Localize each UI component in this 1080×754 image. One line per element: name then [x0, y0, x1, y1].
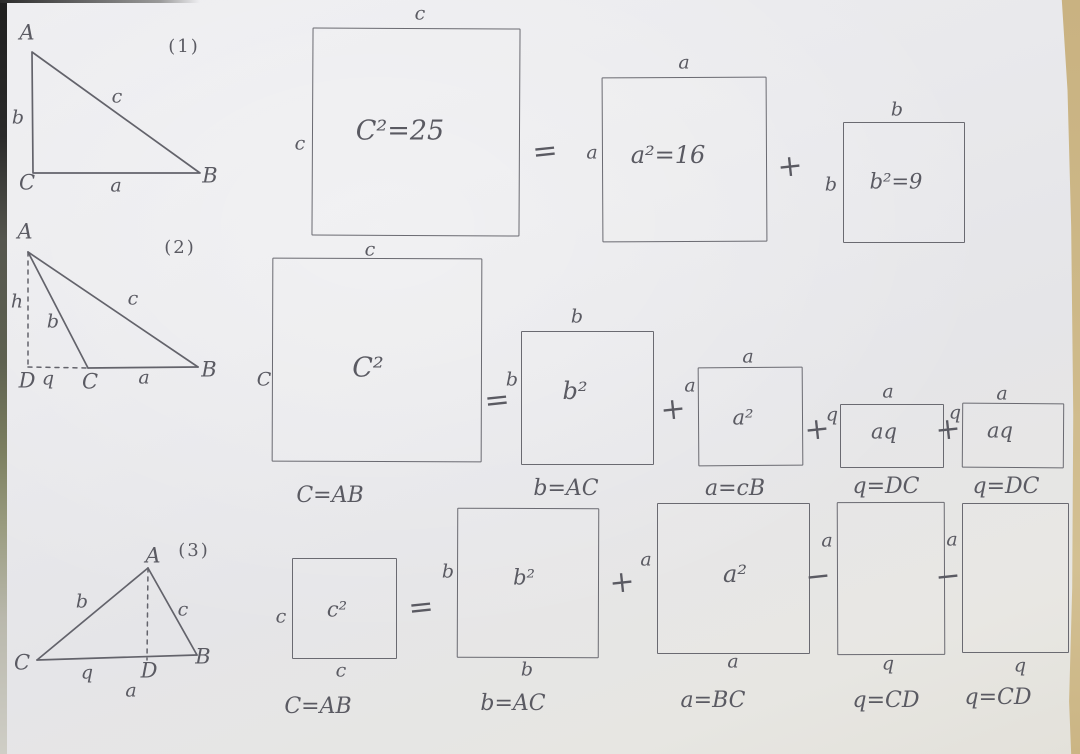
fig3-rect2-left-label: a [946, 531, 957, 550]
fig3-rect2-bottom-label: q [1014, 657, 1026, 676]
fig3-rect1-left-label: a [821, 532, 832, 551]
fig2-rect2-top-label: a [996, 385, 1007, 404]
fig1-vertex-b: B [202, 166, 217, 187]
fig3-side-c-label: c [178, 601, 189, 620]
fig3-side-ab [148, 568, 197, 655]
fig3-equals-sign: = [407, 592, 435, 624]
fig1-vertex-a: A [19, 23, 34, 44]
fig2-rect2-left-label: q [949, 404, 961, 423]
fig2-obtuse-triangle [10, 240, 215, 385]
fig3-vertex-a: A [145, 546, 160, 567]
fig3-rect2-caption: q=CD [965, 687, 1032, 709]
fig2-altitude-h-label: h [11, 293, 23, 312]
fig2-side-b-label: b [47, 313, 59, 332]
fig3-vertex-c: C [14, 653, 30, 674]
fig2-side-a-label: a [138, 369, 149, 388]
fig2-square-b [521, 331, 654, 465]
fig2-square-b-content: b² [563, 379, 588, 403]
fig3-side-b-label: b [76, 593, 88, 612]
fig1-square-b-left-label: b [825, 176, 837, 195]
fig2-rect1-caption: q=DC [853, 476, 920, 498]
fig3-rect1-bottom-label: q [882, 655, 894, 674]
fig3-index: (3) [178, 542, 210, 560]
notebook-photo: A b C c a B (1) c c C²=25 = a a a²=16 + … [0, 0, 1080, 754]
fig3-square-c-bottom-label: c [336, 662, 347, 681]
fig3-rect-q-1 [837, 502, 946, 655]
photo-left-edge-shadow [0, 0, 7, 754]
fig1-triangle-outline [32, 52, 200, 173]
fig2-side-c-label: c [128, 290, 139, 309]
fig2-square-a-top-label: a [742, 348, 753, 367]
fig2-vertex-b: B [201, 360, 216, 381]
fig3-segment-q-label: q [81, 664, 93, 683]
fig2-index: (2) [164, 239, 196, 257]
fig2-rect1-left-label: q [826, 406, 838, 425]
fig3-rect-q-2 [962, 503, 1069, 653]
fig3-square-a-left-label: a [640, 551, 651, 570]
photo-top-edge-shadow [0, 0, 200, 3]
fig2-vertex-d: D [19, 371, 36, 392]
fig3-side-a-label: a [125, 682, 136, 701]
fig2-vertex-c: C [82, 372, 98, 393]
fig3-vertex-d: D [141, 661, 158, 682]
fig2-square-a-caption: a=cB [705, 478, 765, 500]
fig3-side-ca [37, 568, 148, 660]
fig2-square-c-left-label: C [257, 371, 272, 390]
fig1-square-c-top-label: c [415, 5, 426, 24]
fig2-rect1-top-label: a [882, 383, 893, 402]
fig2-vertex-a: A [17, 222, 32, 243]
fig1-square-a-left-label: a [586, 144, 597, 163]
fig1-square-c-left-label: c [295, 135, 306, 154]
fig2-square-c-top-label: c [365, 241, 376, 260]
fig3-rect1-caption: q=CD [853, 690, 920, 712]
fig3-vertex-b: B [195, 647, 210, 668]
fig2-square-a-content: a² [733, 408, 754, 429]
fig2-side-ab [28, 252, 198, 367]
fig3-plus-sign: + [608, 567, 636, 599]
fig3-square-b-caption: b=AC [480, 693, 545, 715]
fig2-square-c-caption: C=AB [296, 485, 363, 507]
fig2-rect-aq-2 [962, 403, 1064, 469]
fig2-plus-sign-1: + [659, 394, 687, 426]
fig1-square-b-content: b²=9 [870, 172, 923, 193]
fig1-side-c-label: c [112, 88, 123, 107]
fig2-square-b-left-label: b [506, 371, 518, 390]
fig1-equals-sign: = [531, 136, 559, 168]
fig1-square-a-top-label: a [678, 54, 689, 73]
fig2-square-c-content: C² [352, 355, 383, 382]
fig2-rect1-content: aq [871, 422, 897, 443]
fig2-segment-dc-dashed [28, 367, 88, 368]
fig2-square-b-caption: b=AC [533, 478, 598, 500]
fig3-altitude-ad-dashed [147, 568, 148, 660]
fig1-vertex-c: C [19, 173, 35, 194]
fig3-square-c-left-label: c [276, 608, 287, 627]
fig1-side-b-label: b [12, 109, 24, 128]
fig1-plus-sign: + [776, 151, 804, 183]
fig1-index: (1) [168, 38, 200, 56]
fig3-square-b-left-label: b [442, 563, 454, 582]
fig3-square-c-caption: C=AB [284, 696, 351, 718]
fig3-minus-sign-1: − [804, 561, 832, 593]
fig2-rect2-content: aq [987, 421, 1013, 442]
fig3-square-a-caption: a=BC [681, 690, 746, 712]
fig1-square-c-content: C²=25 [356, 118, 444, 145]
fig1-side-a-label: a [110, 177, 121, 196]
fig3-side-cb [37, 655, 197, 660]
fig2-rect2-caption: q=DC [973, 476, 1040, 498]
fig3-square-b-bottom-label: b [521, 661, 533, 680]
fig1-square-b-top-label: b [891, 101, 903, 120]
fig3-square-a-content: a² [723, 562, 747, 586]
fig3-square-a-bottom-label: a [727, 653, 738, 672]
fig2-square-a-left-label: a [684, 377, 695, 396]
fig2-segment-q-label: q [42, 370, 54, 389]
fig3-minus-sign-2: − [934, 561, 962, 593]
fig3-square-c-content: c² [327, 600, 347, 621]
fig1-square-a-content: a²=16 [631, 143, 706, 167]
fig3-square-b-content: b² [513, 568, 535, 589]
fig2-square-b-top-label: b [571, 308, 583, 327]
